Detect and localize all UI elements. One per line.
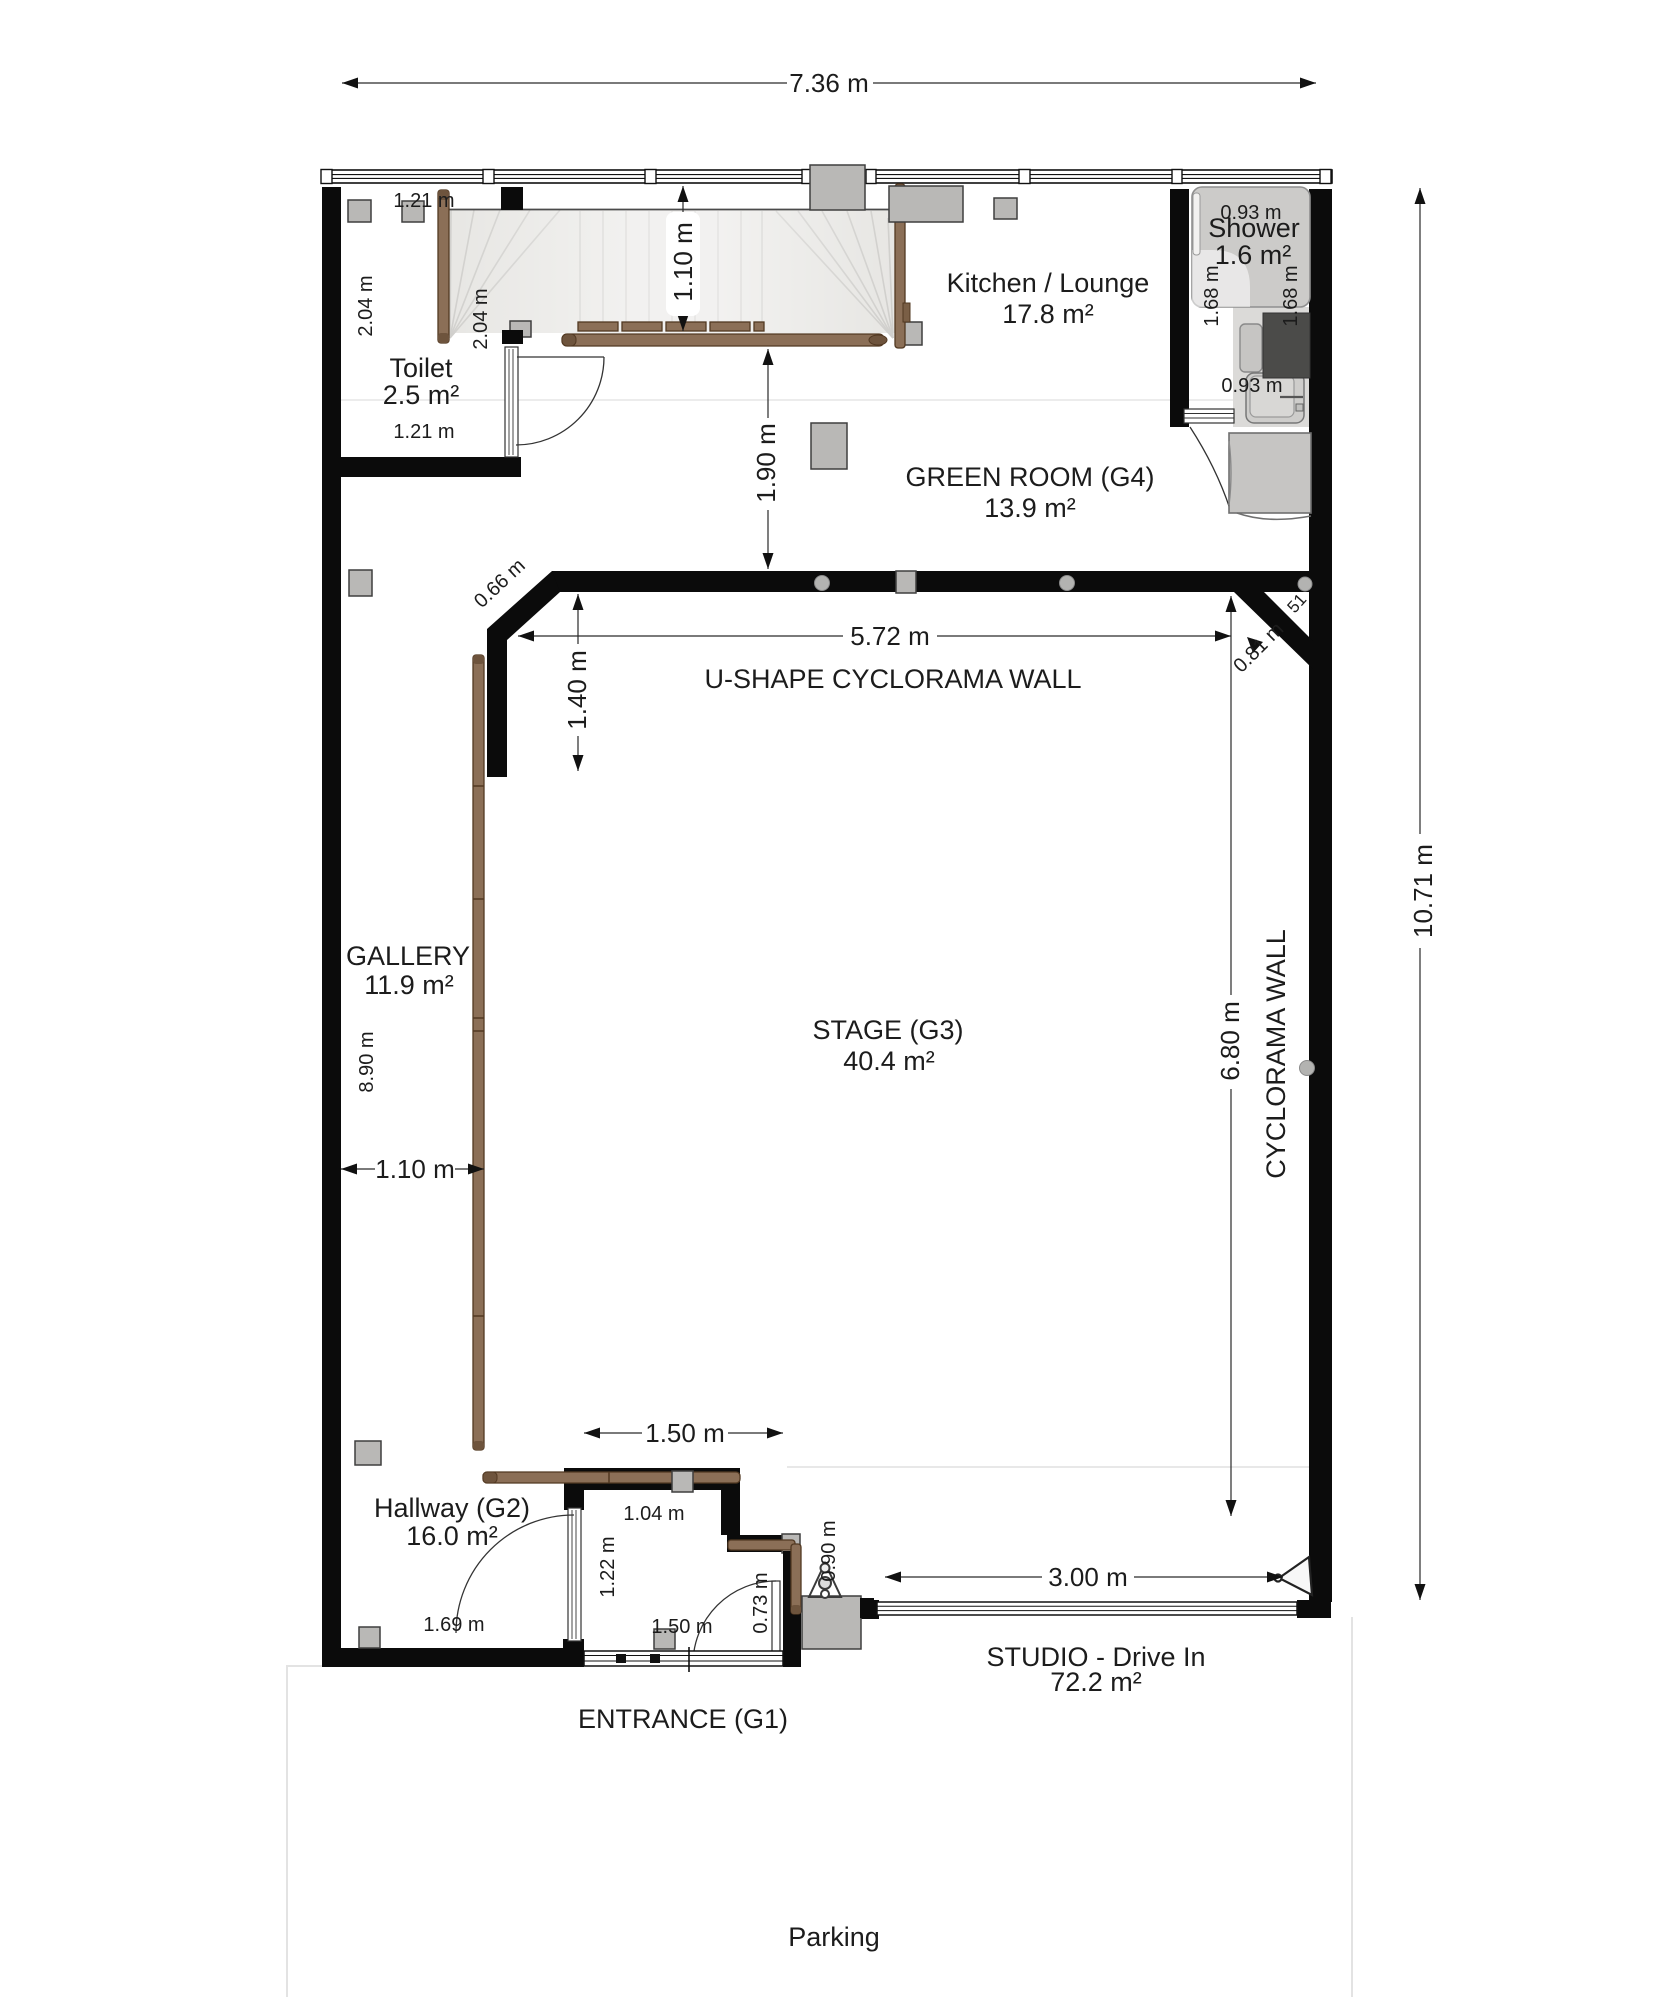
svg-text:1.10 m: 1.10 m xyxy=(668,222,698,302)
svg-text:8.90 m: 8.90 m xyxy=(356,1031,378,1092)
svg-text:10.71 m: 10.71 m xyxy=(1408,844,1438,938)
svg-text:Parking: Parking xyxy=(788,1922,880,1952)
svg-text:CYCLORAMA WALL: CYCLORAMA WALL xyxy=(1261,929,1291,1179)
svg-text:7.36 m: 7.36 m xyxy=(789,68,869,98)
svg-text:72.2 m²: 72.2 m² xyxy=(1050,1667,1142,1697)
svg-text:6.80 m: 6.80 m xyxy=(1215,1001,1245,1081)
svg-text:11.9 m²: 11.9 m² xyxy=(364,970,454,1000)
svg-text:1.90 m: 1.90 m xyxy=(751,423,781,503)
svg-text:Hallway (G2): Hallway (G2) xyxy=(374,1493,530,1523)
svg-text:2.04 m: 2.04 m xyxy=(355,275,377,336)
svg-text:2.5 m²: 2.5 m² xyxy=(383,380,460,410)
svg-text:Kitchen / Lounge: Kitchen / Lounge xyxy=(947,268,1150,298)
svg-text:3.00 m: 3.00 m xyxy=(1048,1562,1128,1592)
svg-text:ENTRANCE (G1): ENTRANCE (G1) xyxy=(578,1704,788,1734)
svg-text:17.8 m²: 17.8 m² xyxy=(1002,299,1094,329)
svg-text:0.93 m: 0.93 m xyxy=(1221,375,1282,397)
svg-text:1.21 m: 1.21 m xyxy=(393,421,454,443)
svg-text:13.9 m²: 13.9 m² xyxy=(984,493,1076,523)
svg-text:STAGE (G3): STAGE (G3) xyxy=(812,1015,963,1045)
svg-text:1.04 m: 1.04 m xyxy=(623,1503,684,1525)
svg-text:0.90 m: 0.90 m xyxy=(818,1520,840,1581)
svg-text:1.50 m: 1.50 m xyxy=(651,1616,712,1638)
svg-text:2.04 m: 2.04 m xyxy=(470,288,492,349)
svg-text:1.21 m: 1.21 m xyxy=(393,190,454,212)
svg-text:GALLERY: GALLERY xyxy=(346,941,470,971)
svg-text:16.0 m²: 16.0 m² xyxy=(406,1521,498,1551)
svg-text:1.10 m: 1.10 m xyxy=(375,1154,455,1184)
svg-text:Shower: Shower xyxy=(1208,213,1300,243)
svg-text:1.50 m: 1.50 m xyxy=(645,1418,725,1448)
svg-text:5.72 m: 5.72 m xyxy=(850,621,930,651)
svg-text:1.68 m: 1.68 m xyxy=(1201,265,1223,326)
svg-text:1.40 m: 1.40 m xyxy=(562,650,592,730)
svg-text:1.68 m: 1.68 m xyxy=(1280,265,1302,326)
svg-text:GREEN ROOM (G4): GREEN ROOM (G4) xyxy=(905,462,1154,492)
svg-text:Toilet: Toilet xyxy=(389,353,453,383)
svg-text:0.73 m: 0.73 m xyxy=(750,1572,772,1633)
svg-text:40.4 m²: 40.4 m² xyxy=(843,1046,935,1076)
svg-text:U-SHAPE CYCLORAMA WALL: U-SHAPE CYCLORAMA WALL xyxy=(704,664,1081,694)
svg-text:1.69 m: 1.69 m xyxy=(423,1614,484,1636)
svg-text:1.22 m: 1.22 m xyxy=(597,1536,619,1597)
